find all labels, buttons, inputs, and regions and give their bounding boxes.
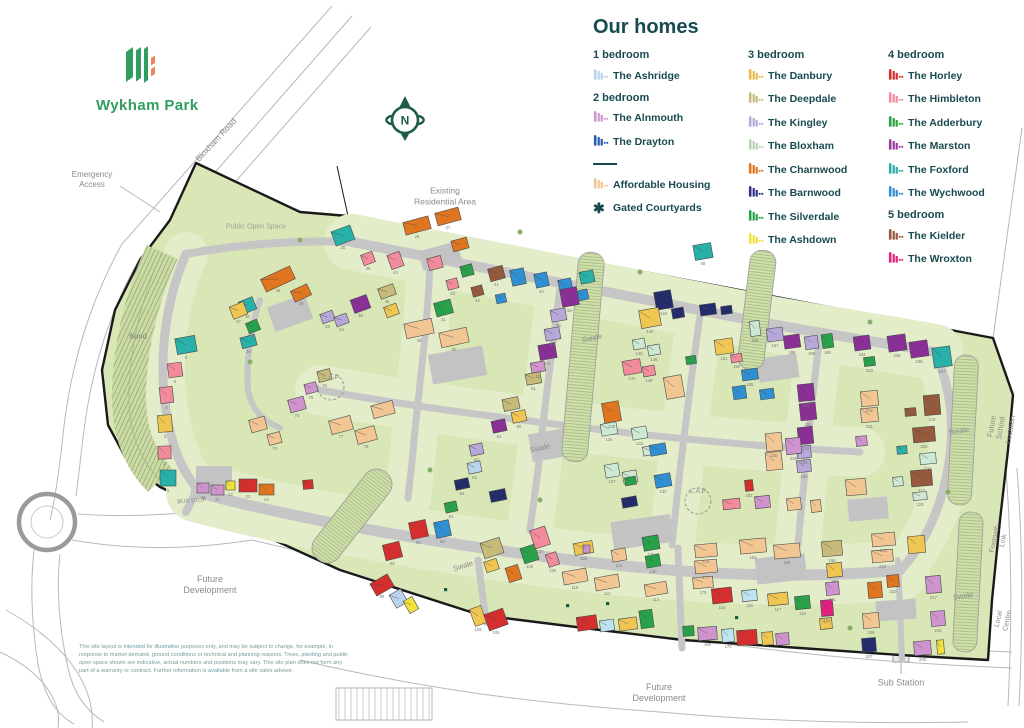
home-type-icon: [593, 108, 610, 123]
home-type-icon: [593, 66, 610, 81]
home-type-icon: [888, 89, 908, 109]
plot-number: 23: [246, 494, 251, 499]
logo: Wykham Park: [96, 44, 186, 114]
plot-number: 144: [647, 329, 655, 334]
legend-item: The Barnwood: [748, 186, 893, 201]
house-plot: [762, 632, 774, 646]
home-type-icon: [748, 207, 768, 227]
site-plan-page: 2526272829303132333435363738394443424140…: [0, 0, 1024, 728]
plot-number: 215: [880, 548, 888, 553]
plot-number: 209: [868, 630, 876, 635]
logo-title: Wykham Park: [96, 97, 186, 114]
home-type-icon: [888, 183, 905, 198]
plot-number: 234: [859, 352, 867, 357]
house-plot: [871, 532, 895, 547]
plot-number: 42: [475, 298, 480, 303]
plot-number: 130: [650, 569, 658, 574]
home-type-icon: [888, 113, 905, 128]
legend-item-label: The Alnmouth: [613, 112, 683, 124]
house-plot: [860, 390, 878, 406]
plot-number: 190: [824, 350, 832, 355]
house-plot: [639, 307, 662, 328]
legend-group-label: 1 bedroom: [593, 49, 738, 61]
house-plot: [720, 305, 732, 314]
plot-number: 118: [799, 611, 806, 616]
home-type-icon: [748, 230, 765, 245]
plot-number: 43: [450, 291, 455, 296]
house-plot: [197, 483, 209, 493]
house-plot: [862, 612, 879, 628]
home-type-icon: [888, 66, 908, 86]
legend-item-label: The Ashdown: [768, 234, 836, 246]
legend-item: ✱Gated Courtyards: [593, 201, 738, 216]
legend-item: The Drayton: [593, 134, 738, 149]
plot-number: 221: [925, 466, 933, 471]
house-plot: [604, 463, 620, 478]
house-plot: [647, 344, 661, 356]
home-type-icon: [748, 230, 768, 250]
house-plot: [469, 443, 484, 456]
plot-number: 51: [531, 386, 536, 391]
home-type-icon: [888, 249, 905, 264]
plot-number: 158: [829, 558, 837, 563]
plot-number: 61: [497, 434, 502, 439]
house-plot: [157, 415, 172, 433]
map-label: Bund: [129, 331, 147, 340]
plot-number: 83: [440, 539, 445, 544]
plot-number: 195: [801, 474, 809, 479]
house-plot: [642, 535, 660, 552]
plot-number: 193: [802, 446, 810, 451]
legend-item-label: Affordable Housing: [613, 179, 710, 191]
house-plot: [741, 368, 758, 381]
legend-item-label: The Danbury: [768, 70, 832, 82]
plot-number: 27: [446, 225, 451, 230]
house-plot: [259, 484, 274, 495]
plot-number: 41: [494, 282, 499, 287]
house-plot: [714, 338, 734, 355]
plot-number: 49: [417, 338, 422, 343]
logo-icon: [122, 44, 160, 86]
house-plot: [167, 362, 183, 378]
legend-item-label: The Kielder: [908, 230, 965, 242]
house-plot: [544, 327, 561, 341]
house-plot: [624, 476, 636, 486]
plot-number: 150: [733, 364, 741, 369]
home-type-icon: [593, 175, 613, 195]
house-plot: [579, 270, 595, 285]
legend-item: The Kingley: [748, 115, 893, 130]
house-plot: [786, 497, 801, 510]
house-plot: [694, 543, 717, 558]
home-type-icon: [748, 183, 765, 198]
house-plot: [576, 615, 598, 632]
home-type-icon: [748, 66, 765, 81]
plot-number: 36: [385, 299, 390, 304]
house-plot: [863, 356, 875, 366]
plot-number: 143: [660, 311, 668, 316]
house-plot: [467, 461, 482, 474]
plot-number: 79: [364, 444, 369, 449]
home-type-icon: [748, 89, 768, 109]
map-label: Existing Residential Area: [414, 185, 476, 206]
house-plot: [804, 335, 819, 350]
house-plot: [599, 619, 614, 632]
house-plot: [910, 469, 932, 487]
house-plot: [444, 501, 458, 513]
house-plot: [776, 633, 790, 646]
plot-number: 26: [415, 234, 420, 239]
plot-number: 137: [609, 479, 617, 484]
map-label: Emergency Access: [72, 170, 112, 190]
house-plot: [754, 495, 770, 509]
house-plot: [730, 353, 742, 362]
house-plot: [765, 432, 783, 452]
roundabout-inner: [31, 506, 63, 538]
legend-item-label: The Horley: [908, 70, 962, 82]
plot-number: 52: [536, 374, 541, 379]
plot-number: 161: [829, 597, 837, 602]
house-plot: [845, 478, 866, 496]
plot-number: 121: [616, 563, 624, 568]
house-plot: [654, 290, 674, 311]
legend-item: The Marston: [888, 139, 1024, 154]
plot-number: 155: [784, 560, 792, 565]
plot-number: 189: [808, 351, 816, 356]
home-type-icon: [748, 160, 768, 180]
plot-number: 111: [604, 591, 611, 596]
plot-number: 148: [646, 378, 654, 383]
house-plot: [550, 308, 567, 322]
house-plot: [912, 426, 935, 443]
house-plot: [797, 383, 815, 402]
house-plot: [893, 477, 904, 487]
plot-number: 28: [276, 288, 281, 293]
legend-column-1: 1 bedroom The Ashridge2 bedroom The Alnm…: [593, 42, 738, 224]
house-plot: [820, 600, 833, 617]
plot-number: 135: [608, 424, 616, 429]
legend-item-label: Gated Courtyards: [613, 202, 702, 214]
house-plot: [618, 617, 637, 631]
plot-number: 175: [700, 590, 708, 595]
plot-number: 222: [918, 488, 926, 493]
plot-number: 39: [366, 266, 371, 271]
house-plot: [671, 307, 685, 319]
legend-item: The Foxford: [888, 162, 1024, 177]
plot-number: 131: [648, 552, 656, 557]
plot-number: 133: [636, 441, 644, 446]
plot-number: 145: [636, 351, 644, 356]
home-type-icon: [748, 160, 765, 175]
plot-number: 237: [939, 369, 947, 374]
plot-number: 33: [325, 324, 330, 329]
plot-number: 128: [526, 564, 534, 569]
house-plot: [435, 207, 462, 226]
house-plot: [759, 388, 774, 400]
plot-number: 134: [606, 437, 614, 442]
plot-number: 85: [390, 561, 395, 566]
plot-number: 194: [801, 460, 809, 465]
plot-number: 113: [653, 597, 660, 602]
house-plot: [826, 562, 842, 577]
plot-number: 30: [245, 314, 250, 319]
house-plot: [434, 520, 452, 539]
house-plot: [303, 480, 314, 490]
legend-item-label: The Himbleton: [908, 93, 981, 105]
plot-number: 146: [651, 357, 659, 362]
plot-number: 116: [746, 603, 753, 608]
legend-item-label: The Foxford: [908, 164, 969, 176]
plot-number: 64: [460, 491, 465, 496]
house-plot: [741, 589, 757, 602]
plot-number: 223: [917, 502, 925, 507]
house-plot: [159, 386, 174, 403]
plot-number: 58: [701, 261, 706, 266]
home-type-icon: [748, 89, 765, 104]
house-plot: [925, 575, 941, 593]
plot-number: 37: [236, 319, 241, 324]
house-plot: [175, 335, 197, 354]
disclaimer-text: This site layout is intended for illustr…: [79, 643, 351, 675]
house-plot: [239, 479, 257, 492]
plot-number: 229: [790, 456, 798, 461]
legend-group-label: 3 bedroom: [748, 49, 893, 61]
house-plot: [785, 437, 802, 454]
house-plot: [920, 452, 937, 464]
plot-number: 232: [866, 408, 874, 413]
house-plot: [913, 640, 931, 655]
house-plot: [821, 333, 834, 348]
north-compass-icon: N: [385, 94, 425, 142]
home-type-icon: [748, 136, 768, 156]
house-plot: [732, 385, 747, 400]
house-plot: [509, 268, 526, 287]
plot-number: 32: [251, 334, 256, 339]
legend-item: The Bloxham: [748, 139, 893, 154]
house-plot: [685, 355, 696, 365]
home-type-icon: [888, 226, 905, 241]
plot-number: 55: [556, 323, 561, 328]
house-plot: [932, 346, 953, 368]
legend-group-label: 5 bedroom: [888, 209, 1024, 221]
home-type-icon: [748, 113, 765, 128]
plot-number: 35: [358, 313, 363, 318]
home-type-icon: [593, 175, 610, 190]
plot-number: 176: [703, 559, 711, 564]
plot-number: 110: [572, 585, 579, 590]
plot-number: 24: [264, 497, 269, 502]
house-plot: [897, 446, 908, 455]
house-plot: [495, 293, 507, 304]
home-type-icon: [888, 136, 905, 151]
plot-number: 187: [772, 343, 780, 348]
legend-item: The Silverdale: [748, 209, 893, 224]
plot-number: 62: [474, 457, 479, 462]
plot-number: 210: [890, 589, 898, 594]
house-plot: [699, 303, 716, 316]
home-type-icon: [888, 160, 905, 175]
house-plot: [491, 419, 507, 434]
plot-number: 186: [752, 338, 760, 343]
plot-number: 220: [921, 444, 929, 449]
plot-number: 22: [228, 492, 233, 497]
plot-number: 147: [629, 376, 637, 381]
home-type-icon: [888, 66, 905, 81]
house-plot: [930, 610, 945, 626]
plot-number: 129: [549, 568, 557, 573]
house-plot: [408, 519, 428, 539]
plot-number: 230: [771, 453, 779, 458]
house-plot: [649, 443, 667, 457]
house-plot: [867, 581, 882, 598]
legend-item-label: The Deepdale: [768, 93, 836, 105]
home-type-icon: [748, 207, 765, 222]
home-type-icon: [748, 66, 768, 86]
house-plot: [905, 408, 917, 417]
plot-number: 151: [721, 356, 729, 361]
home-type-icon: [888, 160, 908, 180]
legend-item: The Wychwood: [888, 186, 1024, 201]
house-plot: [158, 446, 171, 459]
house-plot: [683, 626, 695, 637]
house-plot: [560, 287, 580, 308]
plot-number: 115: [719, 605, 726, 610]
home-type-icon: [888, 226, 908, 246]
plot-number: 54: [550, 342, 555, 347]
home-type-icon: [593, 132, 610, 147]
home-type-icon: [888, 89, 905, 104]
plot-number: 132: [660, 489, 668, 494]
plot-number: 75: [309, 395, 314, 400]
svg-text:N: N: [401, 114, 410, 128]
plot-number: 216: [879, 564, 887, 569]
house-plot: [631, 426, 648, 440]
legend-item-label: The Ashridge: [613, 70, 680, 82]
house-plot: [698, 626, 718, 640]
house-plot: [711, 587, 732, 604]
plot-number: 105: [493, 630, 501, 635]
legend-item: The Horley: [888, 68, 1024, 83]
legend-item-label: The Charnwood: [768, 164, 847, 176]
house-plot: [783, 334, 801, 349]
legend-item: The Wroxton: [888, 252, 1024, 267]
legend-item: The Kielder: [888, 228, 1024, 243]
plot-number: 86: [380, 594, 385, 599]
house-plot: [773, 543, 800, 559]
house-plot: [622, 359, 642, 376]
plot-number: 76: [322, 383, 327, 388]
plot-number: 50: [452, 347, 457, 352]
home-type-icon: [593, 108, 613, 128]
plot-number: 159: [831, 579, 839, 584]
house-plot: [766, 327, 784, 342]
plot-number: 81: [449, 514, 454, 519]
house-plot: [853, 335, 871, 351]
house-plot: [226, 481, 235, 490]
plot-number: 34: [339, 327, 344, 332]
plot-number: 44: [393, 270, 398, 275]
plot-number: 188: [789, 350, 797, 355]
house-plot: [887, 334, 907, 352]
legend-item-label: The Bloxham: [768, 140, 834, 152]
house-plot: [534, 272, 550, 288]
plot-number: 53: [545, 361, 550, 366]
plot-number: 38: [246, 349, 251, 354]
home-type-icon: [748, 136, 765, 151]
plot-number: 127: [537, 549, 545, 554]
plot-number: 231: [866, 424, 874, 429]
house-plot: [654, 473, 672, 489]
house-plot: [601, 401, 621, 424]
plot-number: 29: [299, 301, 304, 306]
future-parking-area: [336, 688, 432, 720]
plot-number: 31: [441, 317, 446, 322]
house-plot: [794, 595, 810, 609]
house-plot: [693, 243, 713, 261]
plot-number: 106: [475, 627, 483, 632]
legend-item: The Charnwood: [748, 162, 893, 177]
legend-item-label: The Wroxton: [908, 253, 972, 265]
house-plot: [211, 485, 224, 495]
legend-item: The Himbleton: [888, 92, 1024, 107]
legend-group-label: 2 bedroom: [593, 92, 738, 104]
house-plot: [530, 361, 546, 373]
house-plot: [739, 538, 766, 554]
home-type-icon: [593, 66, 613, 86]
legend-item: The Danbury: [748, 68, 893, 83]
house-plot: [663, 375, 685, 400]
legend-group-label: 4 bedroom: [888, 49, 1024, 61]
plot-number: 56: [567, 308, 572, 313]
house-plot: [723, 498, 741, 510]
legend-item-label: The Barnwood: [768, 187, 841, 199]
house-plot: [749, 320, 761, 336]
house-plot: [936, 640, 944, 655]
map-label: Future Development: [183, 574, 236, 597]
plot-number: 84: [416, 540, 421, 545]
home-type-icon: [748, 183, 768, 203]
plot-number: 217: [930, 595, 938, 600]
plot-number: 185: [747, 382, 755, 387]
plot-number: 218: [935, 628, 943, 633]
house-plot: [909, 340, 929, 358]
house-plot: [907, 535, 925, 553]
plot-number: 21: [215, 497, 220, 502]
map-label: L.A.P: [690, 488, 706, 496]
map-label: Public Open Space: [226, 224, 286, 233]
plot-number: 177: [703, 575, 711, 580]
plot-number: 207: [866, 654, 874, 659]
legend-item: The Deepdale: [748, 92, 893, 107]
plot-number: 202: [746, 493, 754, 498]
legend-item: The Ashdown: [748, 233, 893, 248]
plot-number: 205: [919, 657, 927, 662]
legend-item: The Ashridge: [593, 68, 738, 83]
home-type-icon: [888, 249, 908, 269]
house-plot: [639, 609, 654, 629]
legend-item-label: The Drayton: [613, 136, 674, 148]
plot-number: 192: [805, 422, 813, 427]
legend-item: Affordable Housing: [593, 177, 738, 192]
plot-number: 170: [725, 644, 733, 649]
gated-courtyards-icon: ✱: [593, 203, 613, 213]
legend-column-2: 3 bedroom The Danbury The Deepdale The K…: [748, 42, 893, 256]
plot-number: 63: [472, 475, 477, 480]
house-plot: [611, 548, 627, 562]
plot-number: 74: [295, 413, 300, 418]
legend-item-label: The Adderbury: [908, 117, 982, 129]
plot-number: 126: [580, 556, 588, 561]
